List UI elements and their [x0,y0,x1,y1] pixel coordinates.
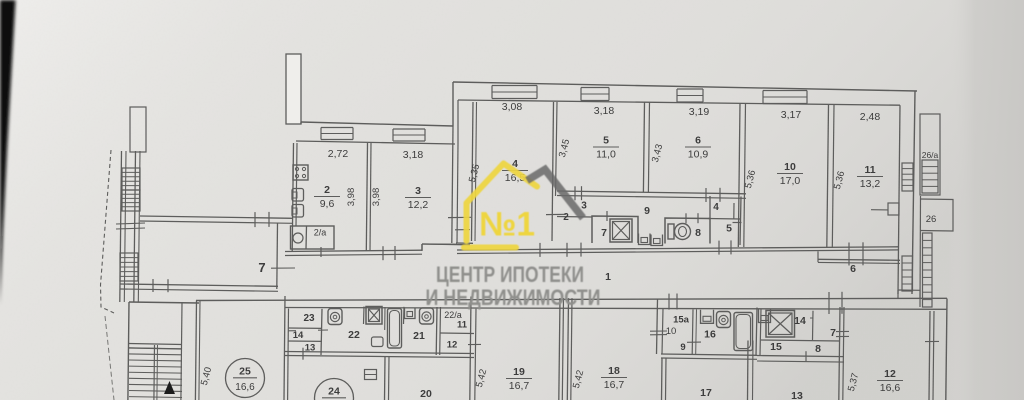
svg-text:11: 11 [864,164,875,176]
svg-text:7: 7 [601,227,607,239]
svg-text:3,98: 3,98 [371,188,382,207]
svg-text:10: 10 [666,326,677,337]
svg-text:9: 9 [644,205,650,217]
svg-text:5: 5 [603,135,609,147]
svg-text:7: 7 [258,260,265,275]
svg-text:3: 3 [415,185,421,197]
svg-text:16,6: 16,6 [880,382,901,394]
svg-text:9,6: 9,6 [320,198,335,210]
svg-text:16,6: 16,6 [235,382,255,393]
svg-text:8: 8 [815,343,821,355]
svg-text:5: 5 [726,223,732,235]
svg-text:9: 9 [680,342,685,353]
svg-text:3,19: 3,19 [689,106,710,118]
svg-text:1: 1 [605,271,611,283]
svg-text:14: 14 [293,330,304,341]
svg-text:23: 23 [303,313,315,324]
svg-text:15: 15 [770,341,782,353]
svg-text:17: 17 [700,387,712,399]
svg-text:21: 21 [413,330,425,342]
svg-text:2/a: 2/a [314,228,327,238]
svg-text:3,18: 3,18 [403,149,424,161]
svg-text:2,48: 2,48 [860,111,881,123]
svg-text:16,7: 16,7 [509,380,530,392]
svg-text:10,9: 10,9 [688,149,709,161]
svg-text:22: 22 [348,329,360,341]
svg-text:3,98: 3,98 [346,188,357,207]
svg-text:№1: №1 [479,206,535,244]
svg-text:16,7: 16,7 [604,379,625,391]
svg-text:22/a: 22/a [444,310,462,320]
svg-text:2: 2 [324,184,330,196]
svg-text:6: 6 [850,263,856,275]
svg-text:26: 26 [926,214,937,225]
svg-text:18: 18 [608,365,620,377]
svg-text:2: 2 [563,212,569,223]
svg-text:11,0: 11,0 [596,149,616,161]
svg-text:3: 3 [581,201,587,212]
svg-text:3,17: 3,17 [781,109,802,121]
svg-text:16: 16 [704,329,716,341]
svg-text:7: 7 [830,327,836,339]
svg-text:3,08: 3,08 [502,101,523,113]
svg-text:20: 20 [420,388,432,400]
svg-text:13,2: 13,2 [860,178,881,190]
svg-text:10: 10 [784,161,796,173]
svg-text:4: 4 [713,202,719,213]
svg-text:13: 13 [791,390,803,400]
svg-text:3,18: 3,18 [594,105,615,117]
svg-text:15a: 15a [673,315,690,326]
svg-text:26/a: 26/a [922,150,939,160]
svg-text:14: 14 [794,315,806,327]
svg-text:19: 19 [513,366,525,378]
svg-text:ЦЕНТР ИПОТЕКИ: ЦЕНТР ИПОТЕКИ [436,262,584,287]
svg-text:12: 12 [447,340,458,351]
svg-text:12: 12 [884,368,896,380]
svg-text:6: 6 [695,135,701,147]
svg-text:24: 24 [328,386,340,398]
svg-text:8: 8 [695,227,701,239]
svg-text:12,2: 12,2 [408,199,429,211]
svg-text:11: 11 [457,320,468,331]
svg-text:И НЕДВИЖИМОСТИ: И НЕДВИЖИМОСТИ [426,285,601,310]
svg-text:2,72: 2,72 [328,148,349,160]
svg-text:25: 25 [239,366,251,378]
svg-text:17,0: 17,0 [780,175,801,187]
